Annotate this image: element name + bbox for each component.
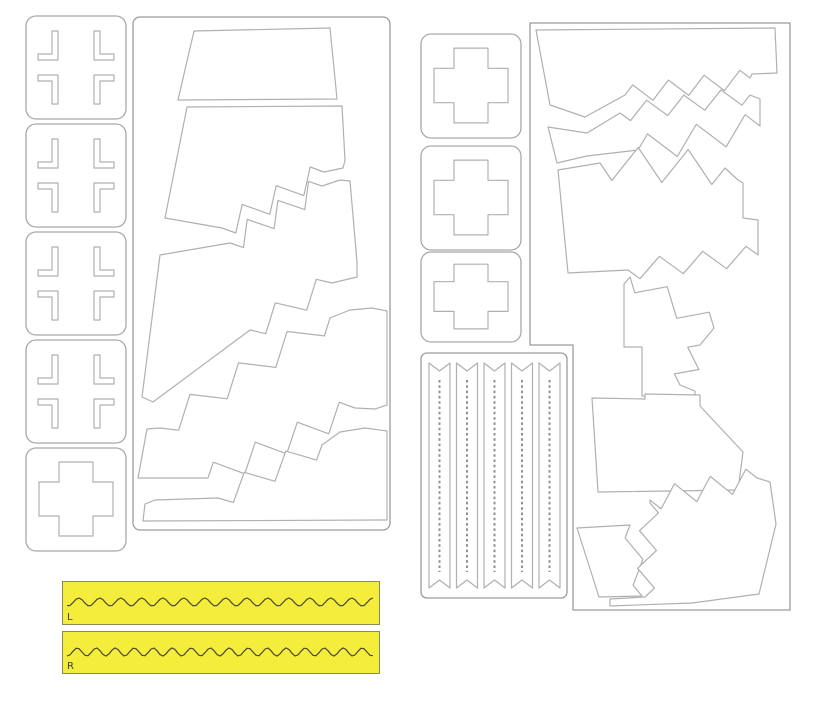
plus-cross-mask (421, 146, 521, 250)
mask-square-outline (26, 340, 126, 443)
wavy-cut-path (67, 648, 373, 656)
left-cross-column (26, 16, 126, 551)
wavy-cut-line (63, 582, 381, 626)
stripe-mask-panel (421, 353, 567, 598)
balkenkreuz-corner-mask (26, 124, 126, 227)
mask-square-outline (26, 124, 126, 227)
plus-cross-mask (421, 34, 521, 138)
wavy-cut-line (63, 632, 381, 675)
strip-label-left: L (67, 612, 73, 623)
right-cross-column (421, 34, 521, 342)
yellow-strip-left: L (62, 581, 380, 625)
yellow-strip-right: R (62, 631, 380, 674)
balkenkreuz-corner-mask (26, 16, 126, 119)
camo-mask-top-trapezoid (178, 28, 337, 100)
balkenkreuz-corner-mask (26, 232, 126, 335)
mask-square-outline (26, 16, 126, 119)
camo-mask-panel-left (133, 17, 390, 530)
wavy-cut-path (67, 598, 373, 606)
balkenkreuz-corner-mask (26, 340, 126, 443)
mask-sheet: L R (0, 0, 819, 710)
strip-label-right: R (67, 661, 74, 672)
plus-cross-mask (421, 252, 521, 342)
mask-square-outline (26, 232, 126, 335)
plus-cross-mask (26, 448, 126, 551)
camo-mask-panel-right (530, 23, 790, 610)
